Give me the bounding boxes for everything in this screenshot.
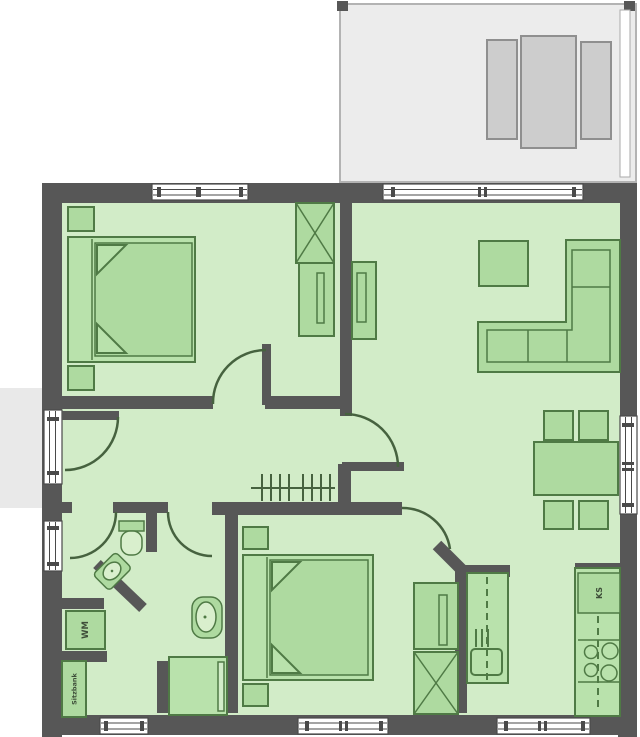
floor-plan-drawing: WM Sitzbank KS bbox=[0, 0, 640, 737]
living-door-leaf bbox=[342, 462, 404, 471]
terrace-lounger-left bbox=[487, 40, 517, 139]
nightstand-2b bbox=[243, 684, 268, 706]
wall-wc-north-stub bbox=[62, 502, 72, 513]
nightstand-2a bbox=[243, 527, 268, 549]
bench-nook: Sitzbank bbox=[62, 661, 86, 717]
window-bath bbox=[100, 718, 148, 734]
coffee-table bbox=[479, 241, 528, 286]
bench-label: Sitzbank bbox=[71, 672, 79, 704]
window-kitchen bbox=[497, 718, 590, 734]
wall-bath-north bbox=[113, 502, 168, 513]
terrace-door bbox=[383, 184, 583, 200]
terrace-rail bbox=[620, 10, 630, 177]
window-bedroom2 bbox=[298, 718, 388, 734]
window-dining bbox=[620, 416, 637, 514]
terrace-lounger-right bbox=[581, 42, 611, 139]
wall-bedroom2-north bbox=[212, 502, 402, 515]
wall-bedroom1-south-right bbox=[265, 396, 352, 409]
window-left bbox=[44, 521, 62, 571]
wardrobe-2-cabinet bbox=[414, 583, 458, 649]
dining-chair bbox=[579, 411, 608, 440]
bath-sink-drain bbox=[204, 616, 207, 619]
wall-bench-east bbox=[157, 661, 168, 713]
nightstand-1a bbox=[68, 207, 94, 231]
toilet-tank bbox=[119, 521, 144, 531]
dining-table bbox=[534, 442, 618, 495]
dining-chair bbox=[544, 411, 573, 440]
entrance-door-glazing bbox=[44, 410, 62, 484]
wall-wc-east bbox=[146, 502, 157, 552]
wall-bedroom1-south-left bbox=[62, 396, 213, 409]
bedroom1-door-leaf bbox=[262, 344, 271, 405]
dining-chair bbox=[579, 501, 608, 529]
fridge-label: KS bbox=[595, 587, 604, 599]
terrace-table bbox=[521, 36, 576, 148]
nightstand-1b bbox=[68, 366, 94, 390]
dining-chair bbox=[544, 501, 573, 529]
washing-machine-label: WM bbox=[81, 621, 91, 639]
wall-bedroom1-living bbox=[340, 203, 352, 416]
entrance-door-leaf bbox=[62, 411, 119, 420]
floor-plan: WM Sitzbank KS bbox=[0, 0, 640, 737]
window-bedroom1 bbox=[152, 184, 248, 200]
wall-wc-south bbox=[62, 598, 104, 609]
shower-door bbox=[218, 662, 224, 711]
terrace bbox=[337, 1, 636, 182]
terrace-post-left bbox=[337, 1, 348, 11]
entrance-porch bbox=[0, 388, 48, 508]
toilet-bowl bbox=[121, 531, 142, 555]
